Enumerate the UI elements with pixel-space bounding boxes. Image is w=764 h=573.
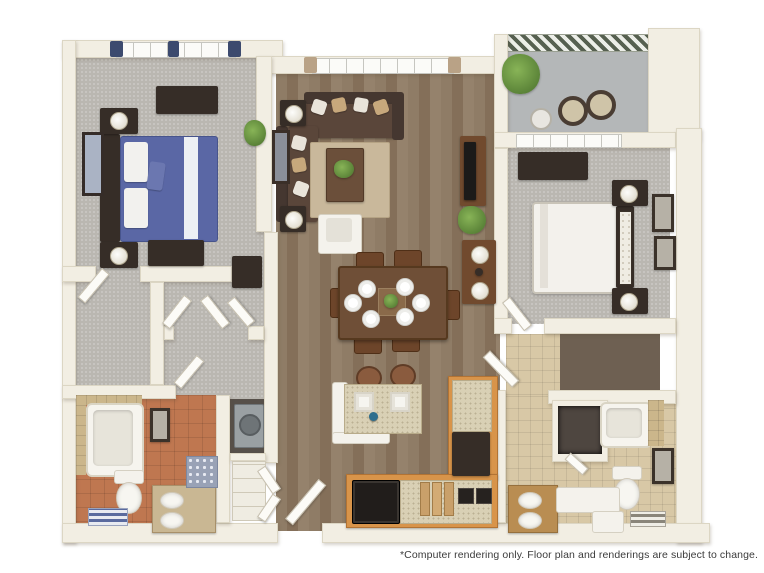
bath2-sink-2 [518,512,542,529]
bedroom2-lamp-bottom [620,293,638,311]
bedroom2-duvet-fold [540,204,548,288]
bath2-tub-basin [606,408,642,438]
side-table-lamp-bottom [285,211,303,229]
living-window [312,58,454,74]
wall-bedroom2-bottom-b [544,318,676,334]
bedroom1-dresser [156,86,218,114]
wall-closet-right [264,232,278,463]
place-setting-1 [358,280,376,298]
bath1-vanity [152,485,216,533]
sofa-pillow-2 [331,97,348,114]
balcony-table [530,108,552,130]
bedroom1-wall-mirror [82,132,104,196]
wall-bedroom2-bottom-a [494,318,512,334]
armchair-cushion [326,218,352,242]
bedroom1-curtain-left [110,41,123,57]
dining-centerpiece [384,294,398,308]
counter-top-vert [452,380,492,432]
bath2-bath-mat [630,511,666,527]
console-lamp-bottom [471,282,489,300]
place-setting-5 [362,310,380,328]
wall-laundry-linen-divider [230,453,266,461]
bath1-bath-mat [88,508,128,526]
side-table-lamp-top [285,105,303,123]
cutting-board-1 [420,482,430,516]
closet-hall-floor [76,282,268,399]
wall-closet-inner-vert [150,282,164,385]
bath2-sink-1 [518,492,542,509]
bedroom2-wall-art-1 [652,194,674,232]
bedroom2-window [516,134,622,148]
bedroom1-bed-white-stripe [184,137,198,239]
living-floor-plant [458,206,486,234]
bath2-wall-art [652,448,674,484]
wall-laundry-left [216,395,230,523]
tv-screen [464,142,476,200]
place-setting-4 [412,294,430,312]
leaning-art-frame [272,130,290,184]
cutting-board-2 [432,482,442,516]
sofa-arm-right [392,92,404,140]
sofa-pillow-6 [291,157,307,173]
balcony-chair-2 [586,90,616,120]
wall-bedroom1-bottom-b [140,266,232,282]
wall-closet-mid-b [248,326,264,340]
bedroom1-pillow-2 [124,188,148,228]
island-sink-left [354,392,374,412]
balcony-plant [502,54,540,94]
bath2-cabinet [592,511,624,533]
bedroom1-plant [244,120,266,146]
closet-niche [232,256,262,288]
island-sink-right [390,392,410,412]
refrigerator [452,432,490,476]
sofa-pillow-3 [353,97,369,113]
bedroom2-headboard-tufting [619,211,632,285]
bedroom1-lamp-top [110,112,128,130]
console-decor [475,268,483,276]
island-faucet [369,412,378,421]
bath2-closet-interior [558,406,602,454]
bedroom2-lamp-top [620,185,638,203]
floor-plan-rendering: *Computer rendering only. Floor plan and… [0,0,764,573]
console-lamp-top [471,246,489,264]
bedroom1-chest [148,240,204,266]
place-setting-2 [396,278,414,296]
bedroom1-lamp-bottom [110,247,128,265]
bedroom2-wall-art-2 [654,236,676,270]
coffee-table-greenery [334,160,354,178]
bedroom2-dresser [518,152,588,180]
cooktop-burner-1 [458,488,474,504]
living-curtain-left [304,57,317,73]
bedroom1-curtain-mid [168,41,179,57]
place-setting-3 [344,294,362,312]
washer-door [239,414,261,436]
bath1-sink-1 [160,492,184,509]
wall-balcony-left [494,34,508,148]
bath1-wall-art [150,408,170,442]
wall-left-outer [62,40,76,543]
wall-right-outer [676,128,702,543]
bath1-tile-surround-left [76,395,86,475]
balcony-railing [495,34,654,52]
bath1-decorative-rug [186,456,218,488]
bedroom1-pillow-1 [124,142,148,182]
cutting-board-3 [444,482,454,516]
cooktop-burner-2 [476,488,492,504]
balcony-chair-1 [558,96,588,126]
disclaimer-text: *Computer rendering only. Floor plan and… [400,549,758,561]
wall-corner-topright [648,28,700,140]
walkin-closet2-floor [560,334,660,396]
bath1-sink-2 [160,512,184,529]
bath2-tile-surround [648,400,664,446]
place-setting-6 [396,308,414,326]
bedroom1-curtain-right [228,41,241,57]
bath2-counter-bench [556,487,620,513]
bath1-tub-basin [93,410,133,466]
kitchen-range [352,480,400,524]
living-curtain-right [448,57,461,73]
